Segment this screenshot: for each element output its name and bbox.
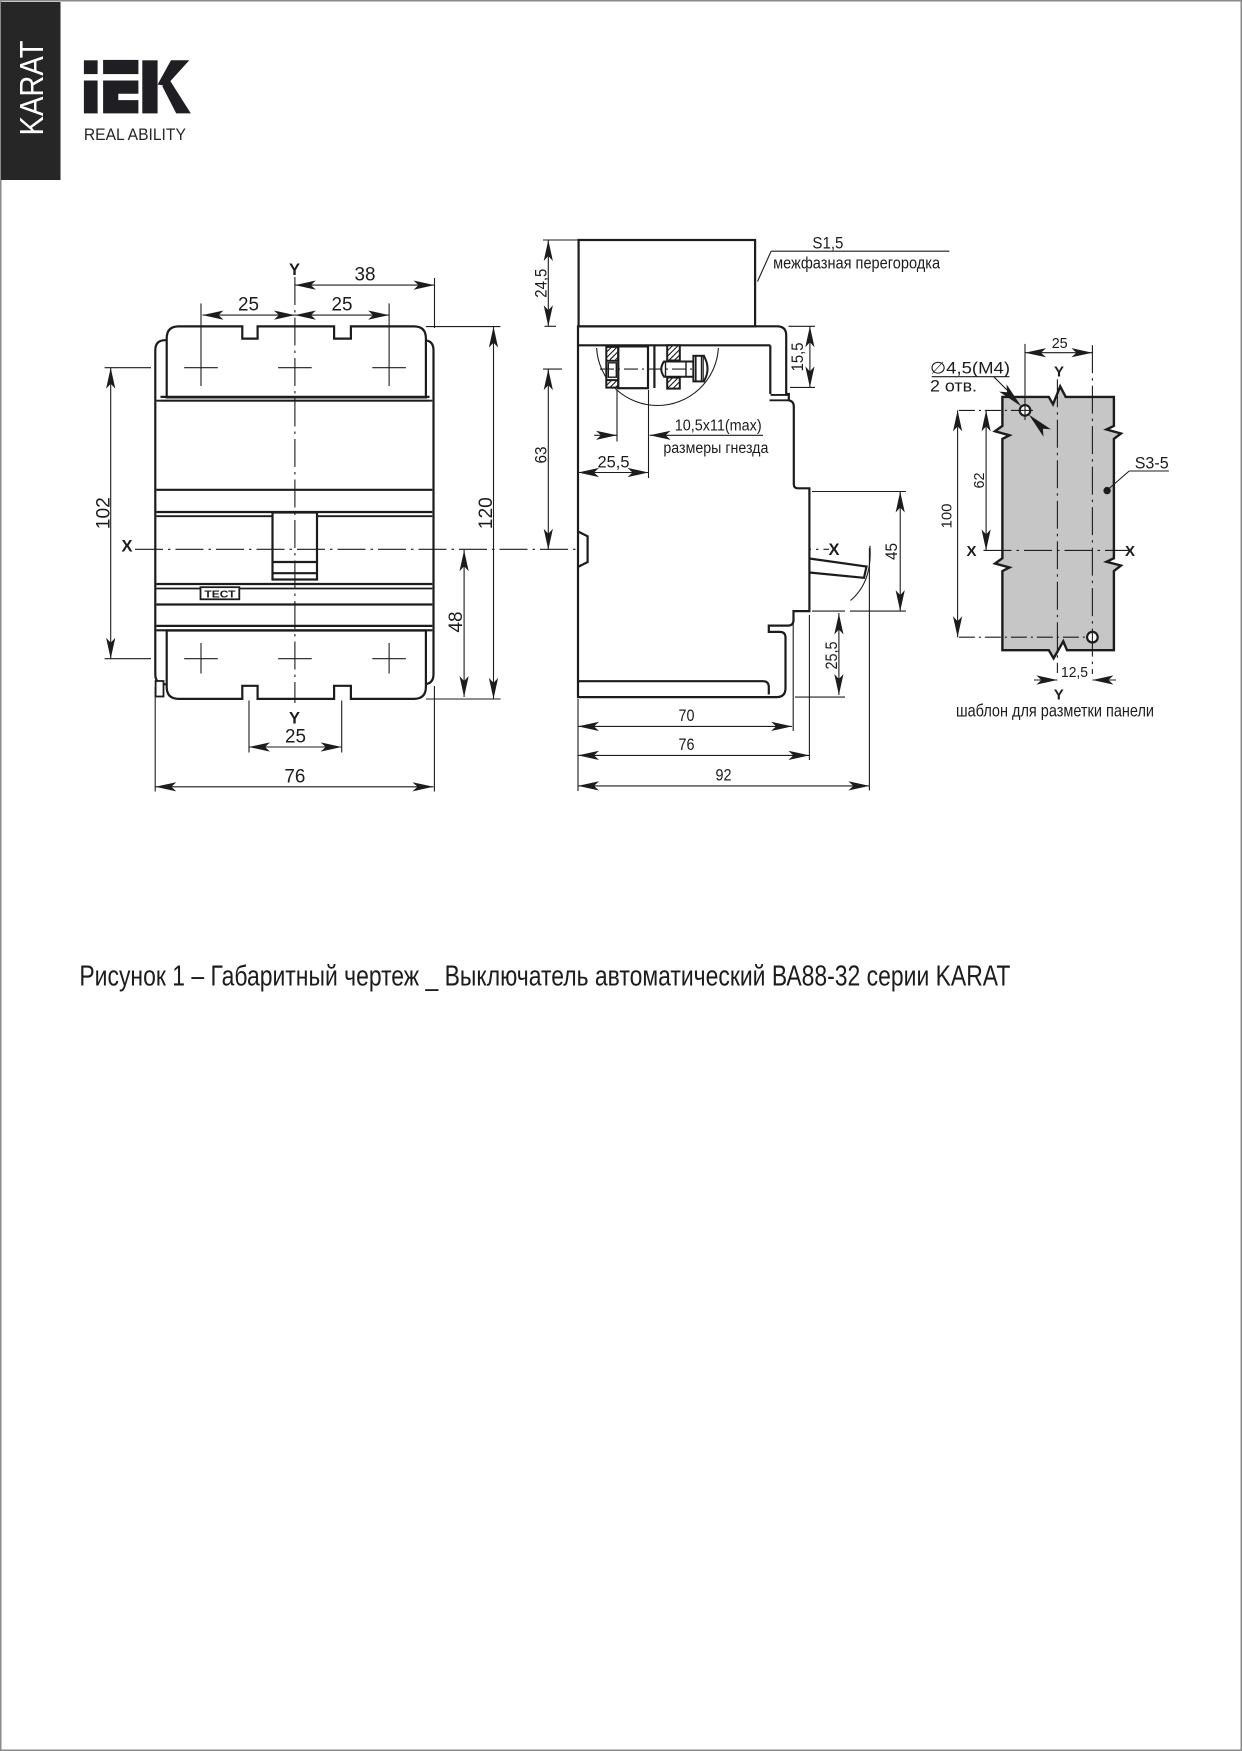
svg-text:2 отв.: 2 отв.	[930, 378, 977, 396]
svg-text:63: 63	[532, 447, 550, 464]
svg-text:Y: Y	[289, 261, 300, 279]
svg-text:X: X	[1125, 543, 1135, 560]
svg-text:S3-5: S3-5	[1135, 455, 1169, 473]
svg-text:шаблон для разметки панели: шаблон для разметки панели	[956, 701, 1154, 721]
svg-text:24,5: 24,5	[532, 269, 550, 298]
svg-text:100: 100	[939, 504, 956, 529]
svg-text:102: 102	[93, 497, 114, 529]
svg-text:120: 120	[476, 497, 497, 529]
svg-text:размеры гнезда: размеры гнезда	[663, 440, 768, 457]
svg-text:ТЕСТ: ТЕСТ	[204, 589, 235, 600]
svg-text:70: 70	[679, 707, 695, 725]
svg-text:X: X	[121, 538, 132, 556]
svg-text:62: 62	[971, 473, 988, 489]
svg-text:25: 25	[1052, 335, 1068, 352]
svg-text:X: X	[829, 541, 840, 559]
svg-text:45: 45	[883, 543, 901, 560]
svg-text:76: 76	[679, 736, 695, 754]
svg-text:X: X	[966, 543, 976, 560]
svg-text:Y: Y	[289, 710, 300, 728]
svg-text:38: 38	[355, 265, 376, 286]
svg-text:25: 25	[332, 295, 353, 316]
svg-text:15,5: 15,5	[789, 342, 807, 371]
svg-text:92: 92	[716, 767, 732, 785]
svg-text:Y: Y	[1054, 364, 1064, 381]
svg-text:S1,5: S1,5	[812, 235, 843, 253]
svg-text:∅4,5(M4): ∅4,5(M4)	[930, 360, 1010, 378]
svg-text:межфазная перегородка: межфазная перегородка	[773, 255, 941, 273]
svg-text:76: 76	[284, 767, 305, 788]
svg-text:Рисунок 1 – Габаритный чертеж: Рисунок 1 – Габаритный чертеж _ Выключат…	[79, 961, 1010, 993]
svg-text:10,5x11(max): 10,5x11(max)	[675, 418, 762, 435]
svg-text:25,5: 25,5	[598, 454, 630, 472]
svg-text:25,5: 25,5	[823, 642, 841, 670]
svg-text:48: 48	[446, 612, 467, 633]
svg-text:REAL ABILITY: REAL ABILITY	[84, 126, 186, 144]
svg-text:KARAT: KARAT	[13, 40, 50, 135]
svg-text:25: 25	[285, 727, 306, 748]
svg-text:25: 25	[238, 295, 259, 316]
svg-text:12,5: 12,5	[1061, 664, 1088, 681]
